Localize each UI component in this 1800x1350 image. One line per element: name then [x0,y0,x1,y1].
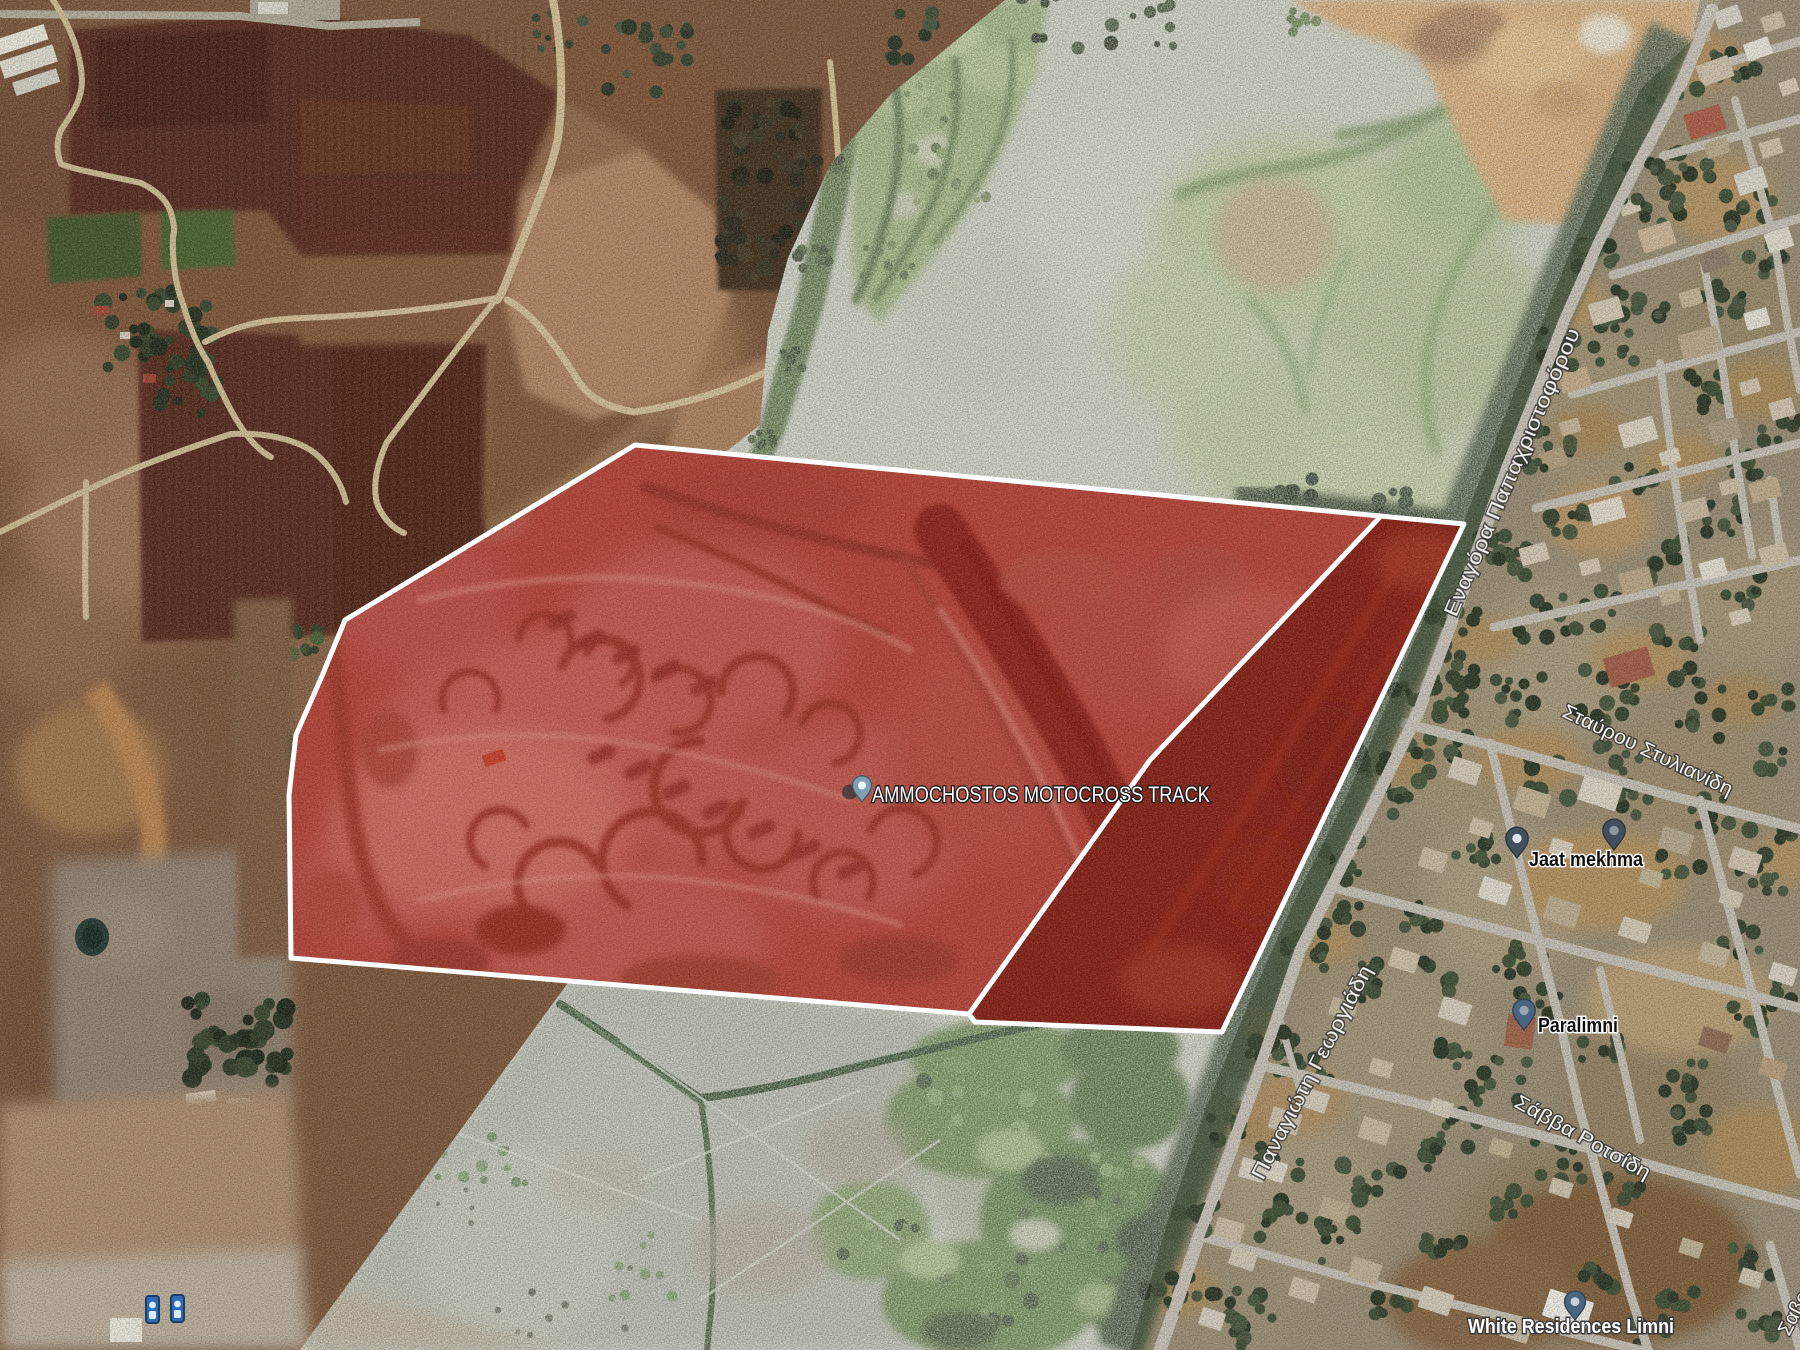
svg-text:Paralimni: Paralimni [1538,1015,1618,1037]
svg-text:White Residences Limni: White Residences Limni [1468,1316,1674,1338]
svg-text:AMMOCHOSTOS MOTOCROSS TRACK: AMMOCHOSTOS MOTOCROSS TRACK [872,782,1210,807]
svg-text:Jaat mekhma: Jaat mekhma [1529,849,1644,871]
